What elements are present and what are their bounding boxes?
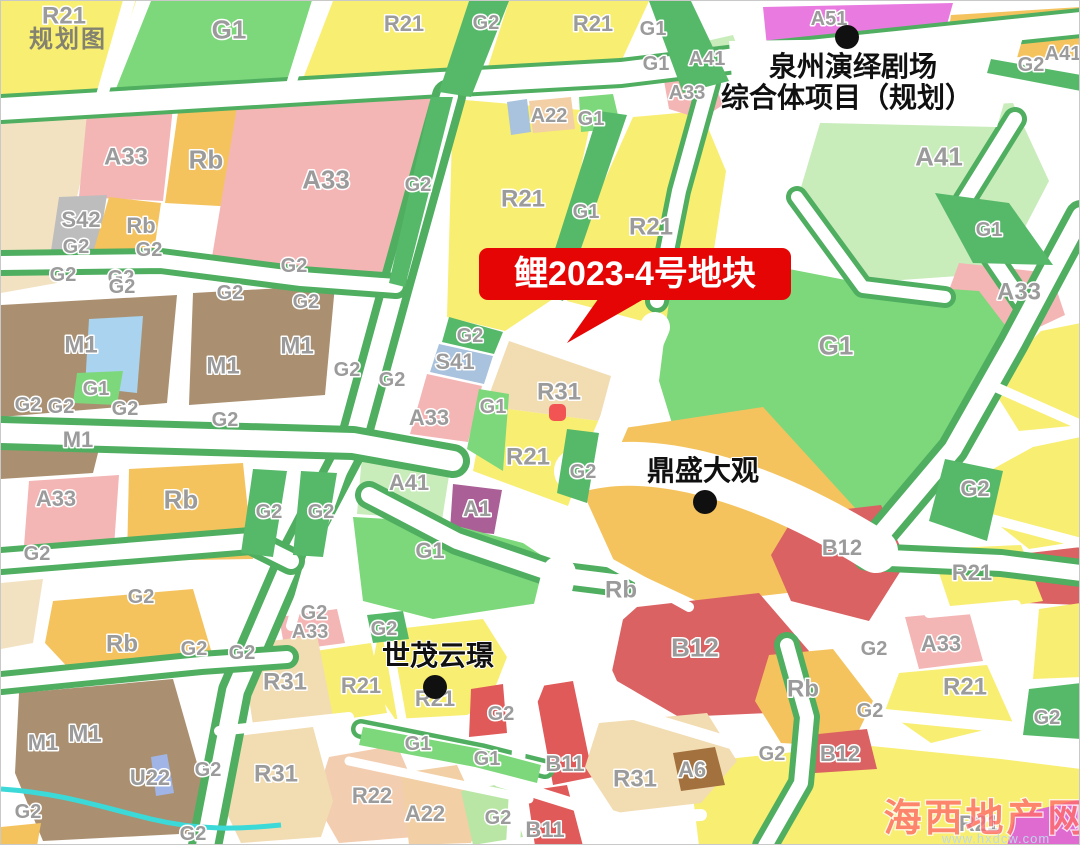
planning-map: R21G1R21G2R21G1G1A51A41A33G2A41A33RbA33G… <box>0 0 1080 845</box>
zone-label: G2 <box>128 586 155 608</box>
zone-label: R21 <box>384 11 424 36</box>
zone-label: R21 <box>943 674 987 701</box>
zone-label: G1 <box>212 14 247 44</box>
zone-label: G1 <box>976 219 1003 241</box>
poi-label: 综合体项目（规划） <box>721 81 973 113</box>
zone-label: A33 <box>104 144 148 171</box>
zone-label: U22 <box>130 765 170 790</box>
zone-label: S42 <box>61 207 100 232</box>
zone-label: A41 <box>689 48 726 70</box>
zone-label: G2 <box>293 291 320 313</box>
zone-label: R31 <box>613 766 657 793</box>
zone-label: R22 <box>352 783 392 808</box>
zone-label: A22 <box>531 105 568 127</box>
zone-label: Rb <box>189 144 224 174</box>
zone-label: G1 <box>643 53 670 75</box>
zone-label: R21 <box>501 186 545 213</box>
zone-label: R21 <box>341 673 381 698</box>
zone-label: G2 <box>181 638 208 660</box>
zone-label: G2 <box>379 369 406 391</box>
planning-map-canvas: R21G1R21G2R21G1G1A51A41A33G2A41A33RbA33G… <box>1 1 1080 845</box>
zone-label: A41 <box>389 470 429 495</box>
zone-label: G2 <box>109 276 136 298</box>
zone-polygon <box>15 679 205 841</box>
watermark-site: 海西地产网 www.hxdcw.com <box>883 798 1080 845</box>
zone-label: A41 <box>915 141 963 171</box>
zone-label: G2 <box>1034 707 1061 729</box>
zone-label: G2 <box>212 409 239 431</box>
zone-label: G2 <box>488 703 515 725</box>
zone-label: S41 <box>435 349 474 374</box>
zone-label: Rb <box>106 631 138 658</box>
zone-label: A41 <box>1045 43 1080 65</box>
zone-label: G2 <box>485 807 512 829</box>
zone-label: B12 <box>820 741 860 766</box>
zone-label: A33 <box>302 164 350 194</box>
zone-label: G1 <box>480 396 507 418</box>
zone-label: G1 <box>819 330 854 360</box>
zone-label: M1 <box>63 427 94 452</box>
zone-label: G1 <box>415 538 444 563</box>
zone-label: A1 <box>463 496 491 521</box>
zone-label: A33 <box>36 486 76 511</box>
zone-label: G2 <box>308 501 335 523</box>
zone-label: G1 <box>405 733 432 755</box>
zone-label: R31 <box>254 761 298 788</box>
watermark-plan-title: 规划图 <box>29 26 107 53</box>
zone-label: G2 <box>136 239 163 261</box>
zone-label: M1 <box>64 332 97 359</box>
zone-label: R21 <box>952 560 992 585</box>
zone-label: M1 <box>28 730 59 755</box>
parcel-dot <box>549 404 566 421</box>
zone-polygon <box>507 99 531 135</box>
zone-label: G2 <box>861 638 888 660</box>
zone-label: R21 <box>629 214 673 241</box>
zone-label: G2 <box>229 642 256 664</box>
poi-label: 泉州演绎剧场 <box>769 50 937 82</box>
zone-label: B12 <box>822 535 862 560</box>
zone-label: G2 <box>371 618 398 640</box>
zone-label: G2 <box>960 476 989 501</box>
zone-label: G2 <box>15 394 42 416</box>
poi-dot <box>693 490 717 514</box>
zone-label: G2 <box>570 461 597 483</box>
poi-label: 世茂云璟 <box>382 640 494 671</box>
zone-label: G2 <box>63 236 90 258</box>
zone-label: B11 <box>545 751 584 776</box>
zone-label: G2 <box>217 282 244 304</box>
zone-label: G2 <box>334 359 361 381</box>
zone-label: R21 <box>573 11 613 36</box>
zone-label: G2 <box>180 823 207 845</box>
zone-label: Rb <box>164 484 199 514</box>
zone-label: R31 <box>537 379 581 406</box>
zone-label: G2 <box>281 255 308 277</box>
zone-label: G1 <box>578 108 605 130</box>
zone-label: G1 <box>640 18 667 40</box>
watermark-site-url: www.hxdcw.com <box>941 831 1050 845</box>
zone-label: Rb <box>126 213 155 238</box>
zone-label: G2 <box>473 12 500 34</box>
zone-label: A33 <box>292 621 329 643</box>
zone-label: A33 <box>669 82 706 104</box>
zone-label: G1 <box>573 201 600 223</box>
zone-label: G2 <box>195 759 222 781</box>
poi-label: 鼎盛大观 <box>647 455 759 486</box>
poi-dot <box>835 25 859 49</box>
zone-label: M1 <box>68 721 101 748</box>
poi-dot <box>423 675 447 699</box>
zone-label: A6 <box>678 757 706 782</box>
zone-label: G2 <box>457 325 484 347</box>
zone-label: Rb <box>605 577 637 604</box>
zone-label: Rb <box>787 676 819 703</box>
zone-label: G2 <box>857 700 884 722</box>
zone-label: G2 <box>405 174 432 196</box>
zone-polygon <box>1033 603 1080 679</box>
zone-label: G2 <box>48 396 75 418</box>
zone-label: G1 <box>474 748 501 770</box>
zone-label: A33 <box>409 405 449 430</box>
zone-label: A33 <box>921 631 961 656</box>
zone-label: M1 <box>280 333 313 360</box>
zone-label: M1 <box>206 353 239 380</box>
zone-label: G2 <box>1018 54 1045 76</box>
zone-label: G2 <box>256 501 283 523</box>
zone-label: B12 <box>671 632 719 662</box>
zone-label: G1 <box>83 378 110 400</box>
zone-label: A33 <box>997 279 1041 306</box>
zone-label: G2 <box>112 398 139 420</box>
zone-label: G2 <box>15 801 42 823</box>
zone-label: B11 <box>525 817 564 842</box>
zone-label: G2 <box>24 543 51 565</box>
zone-label: R21 <box>506 444 550 471</box>
zone-label: G2 <box>759 743 786 765</box>
callout-label: 鲤2023-4号地块 <box>514 255 756 293</box>
zone-label: R31 <box>263 669 307 696</box>
zone-label: A22 <box>405 801 445 826</box>
zone-label: G2 <box>50 264 77 286</box>
